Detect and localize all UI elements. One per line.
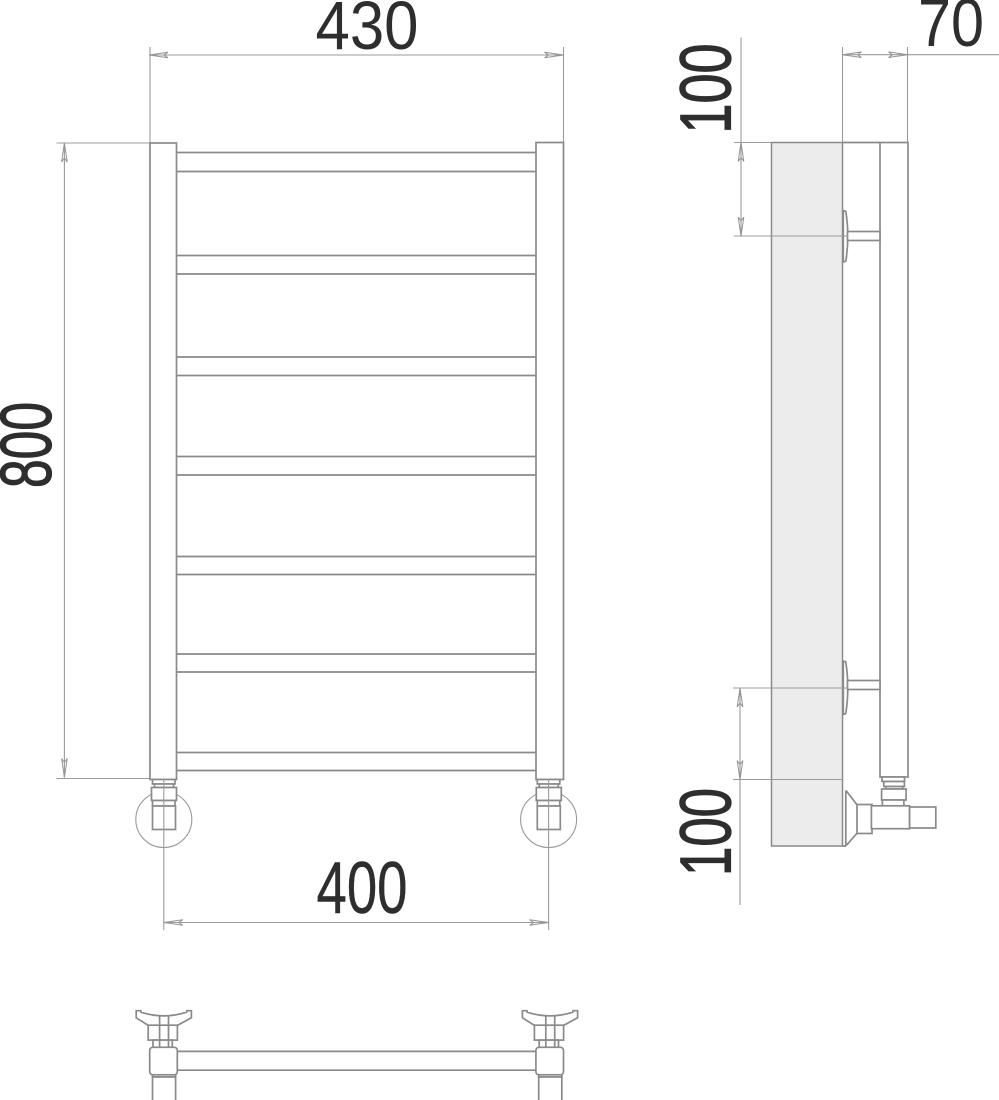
svg-text:100: 100 xyxy=(667,44,747,134)
svg-text:70: 70 xyxy=(918,0,984,61)
svg-text:100: 100 xyxy=(667,788,747,876)
svg-text:430: 430 xyxy=(316,0,419,64)
svg-text:400: 400 xyxy=(317,848,408,929)
svg-text:800: 800 xyxy=(0,402,67,488)
